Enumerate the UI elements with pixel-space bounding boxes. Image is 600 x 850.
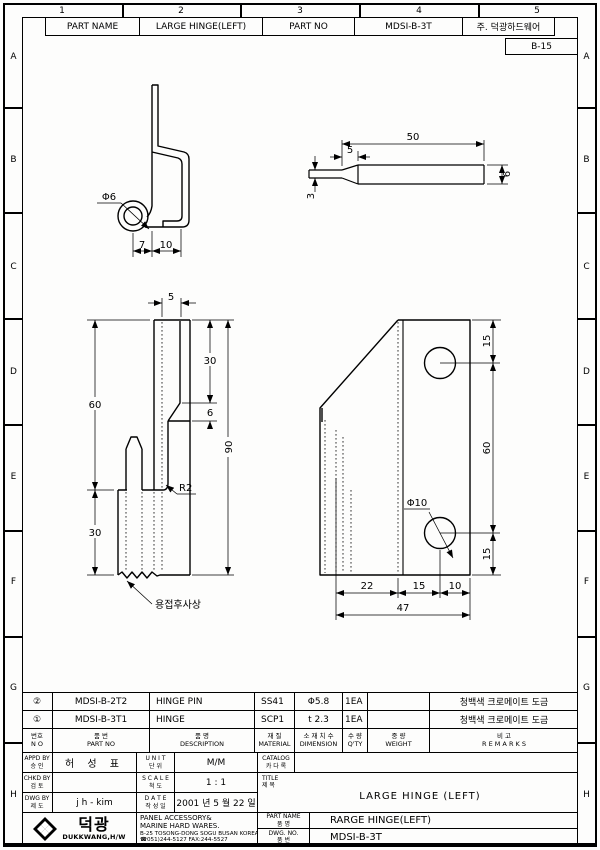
- zone-divider: [578, 742, 595, 744]
- part-row-material: SCP1: [255, 711, 295, 729]
- zone-row-g-left: G: [5, 678, 22, 698]
- company-info: PANEL ACCESSORY& MARINE HARD WARES. B-25…: [137, 813, 258, 846]
- appd-by-label: APPD BY승 인: [22, 753, 53, 773]
- part-row-remarks: 청백색 크로메이트 도금: [430, 711, 578, 729]
- dim-30-lower: 30: [89, 528, 102, 539]
- dim-5-width: 5: [168, 292, 174, 303]
- dim-47: 47: [397, 603, 410, 614]
- dim-10: 10: [160, 240, 173, 251]
- dim-50: 50: [407, 132, 420, 143]
- date-label: D A T E작 성 일: [137, 793, 175, 813]
- part-row-qty: 1EA: [343, 693, 368, 711]
- col-header-no: 번호N O: [22, 729, 53, 753]
- part-row-no: ①: [22, 711, 53, 729]
- part-row-weight: [368, 711, 430, 729]
- drawing-views: Φ6 7 10: [0, 0, 600, 680]
- dwg-no-block-value: MDSI-B-3T: [310, 829, 578, 846]
- zone-row-g-right: G: [578, 678, 595, 698]
- part-row-qty: 1EA: [343, 711, 368, 729]
- zone-divider: [5, 742, 22, 744]
- title-value: LARGE HINGE (LEFT): [359, 791, 480, 802]
- date-value: 2001 년 5 월 22 일: [175, 793, 258, 813]
- col-header-dimension: 소 재 치 수DIMENSION: [295, 729, 343, 753]
- title-cell: TITLE제 목 LARGE HINGE (LEFT): [258, 773, 578, 813]
- dim-r2: R2: [179, 483, 192, 494]
- col-header-qty: 수 량Q'TY: [343, 729, 368, 753]
- logo-english: DUKKWANG,H/W: [62, 834, 125, 841]
- dim-7: 7: [139, 240, 145, 251]
- dim-6-bevel: 6: [207, 408, 213, 419]
- col-header-desc: 품 명DESCRIPTION: [150, 729, 255, 753]
- chkd-by-label: CHKD BY검 토: [22, 773, 53, 793]
- part-row-desc: HINGE PIN: [150, 693, 255, 711]
- chkd-by-value: [53, 773, 137, 793]
- dim-hole-dia: Φ6: [102, 192, 116, 203]
- unit-label: U N I T단 위: [137, 753, 175, 773]
- col-header-remarks: 비 고R E M A R K S: [430, 729, 578, 753]
- part-row-material: SS41: [255, 693, 295, 711]
- dim-15-top: 15: [482, 335, 493, 348]
- dim-60: 60: [89, 400, 102, 411]
- dwg-by-label: DWG BY제 도: [22, 793, 53, 813]
- part-row-partno: MDSI-B-3T1: [53, 711, 150, 729]
- profile-view: Φ6 7 10: [97, 85, 189, 257]
- dwg-by-value: j h - kim: [53, 793, 137, 813]
- dukkwang-logo-icon: [32, 816, 58, 842]
- drawing-sheet: 1 2 3 4 5 A B C D E F G H A B C D E F G …: [0, 0, 600, 850]
- part-name-block-label: PART NAME품 명: [258, 813, 310, 829]
- dim-30-upper: 30: [204, 356, 217, 367]
- dim-15-b: 15: [413, 581, 426, 592]
- part-row-remarks: 청백색 크로메이트 도금: [430, 693, 578, 711]
- unit-value: M/M: [175, 753, 258, 773]
- zone-row-h-left: H: [5, 785, 22, 805]
- dim-10-b: 10: [449, 581, 462, 592]
- weld-note: 용접후사상: [155, 599, 201, 611]
- dim-6-dia: 6: [502, 171, 513, 177]
- scale-value: 1 : 1: [175, 773, 258, 793]
- dwg-no-block-label: DWG. NO.품 번: [258, 829, 310, 846]
- part-row-dimension: t 2.3: [295, 711, 343, 729]
- title-label: TITLE제 목: [262, 775, 278, 789]
- dim-15-bottom: 15: [482, 548, 493, 561]
- part-row-dimension: Φ5.8: [295, 693, 343, 711]
- dim-60-mid: 60: [482, 442, 493, 455]
- part-name-block-value: RARGE HINGE(LEFT): [310, 813, 578, 829]
- catalog-value: [295, 753, 578, 773]
- catalog-label: CATALOG카 다 록: [258, 753, 295, 773]
- dim-hole-10: Φ10: [407, 498, 428, 509]
- dim-5-taper: 5: [347, 145, 353, 156]
- parts-and-title-block: ② MDSI-B-2T2 HINGE PIN SS41 Φ5.8 1EA 청백색…: [22, 692, 578, 845]
- part-row-desc: HINGE: [150, 711, 255, 729]
- col-header-weight: 중 량WEIGHT: [368, 729, 430, 753]
- part-row-weight: [368, 693, 430, 711]
- col-header-partno: 품 번PART NO: [53, 729, 150, 753]
- company-logo: 덕광 DUKKWANG,H/W: [22, 813, 137, 846]
- logo-korean: 덕광: [78, 817, 109, 833]
- part-row-no: ②: [22, 693, 53, 711]
- front-view: 5 60 30 30 6 90 R2 용접후사상: [85, 292, 235, 611]
- col-header-material: 재 질MATERIAL: [255, 729, 295, 753]
- part-row-partno: MDSI-B-2T2: [53, 693, 150, 711]
- appd-by-value: 허 성 표: [53, 753, 137, 773]
- dim-22: 22: [361, 581, 374, 592]
- dim-90: 90: [224, 441, 235, 454]
- dim-3-tip: 3: [306, 193, 317, 199]
- scale-label: S C A L E척 도: [137, 773, 175, 793]
- pin-view: 50 5 6 3: [306, 132, 513, 199]
- plate-view: 15 60 15 Φ10 22 15 10 47: [320, 320, 501, 620]
- zone-row-h-right: H: [578, 785, 595, 805]
